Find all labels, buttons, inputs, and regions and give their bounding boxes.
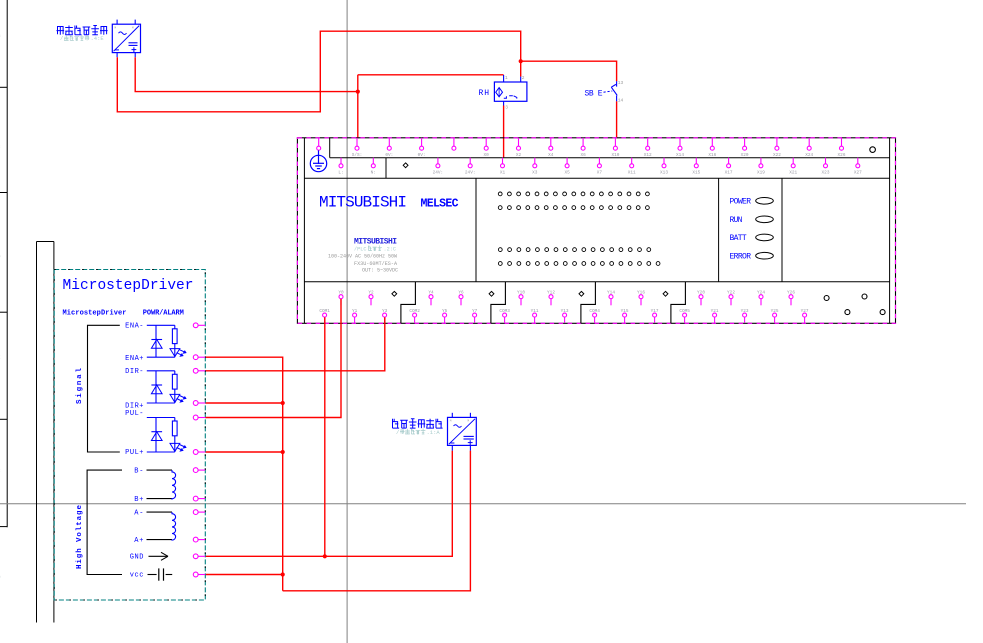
svg-text:X14: X14	[676, 153, 684, 158]
svg-text:X13: X13	[660, 171, 668, 176]
svg-text:C: C	[0, 144, 1, 150]
svg-text:X20: X20	[741, 153, 749, 158]
svg-text:13: 13	[618, 80, 624, 86]
svg-text:A+: A+	[134, 537, 143, 545]
svg-text:0V:: 0V:	[418, 153, 426, 158]
svg-text:/: /	[60, 35, 63, 42]
svg-text:L:: L:	[338, 171, 343, 176]
svg-text:X21: X21	[789, 171, 797, 176]
svg-text:X1: X1	[500, 171, 506, 176]
svg-text:X23: X23	[822, 171, 830, 176]
svg-text:X2: X2	[516, 153, 522, 158]
svg-text:N:: N:	[371, 171, 376, 176]
svg-text:F: F	[0, 469, 1, 475]
svg-text:PUL-: PUL-	[125, 410, 143, 418]
svg-text:14: 14	[618, 98, 624, 104]
svg-text:X22: X22	[773, 153, 781, 158]
svg-text:X24: X24	[805, 153, 813, 158]
svg-text:2: 2	[522, 75, 525, 81]
svg-text:High Voltage: High Voltage	[76, 505, 84, 569]
svg-text:DIR-: DIR-	[125, 368, 143, 376]
svg-text:X11: X11	[628, 171, 636, 176]
svg-text:X7: X7	[597, 171, 603, 176]
svg-text:OUT: 5~30VDC: OUT: 5~30VDC	[362, 268, 398, 274]
svg-text:B+: B+	[134, 496, 143, 504]
svg-text:X15: X15	[692, 171, 700, 176]
svg-text:BATT: BATT	[730, 234, 747, 243]
svg-text:E: E	[0, 355, 1, 361]
svg-text:24V:: 24V:	[433, 171, 444, 176]
svg-text:100-240V AC 50/60Hz 50W: 100-240V AC 50/60Hz 50W	[328, 253, 398, 259]
svg-text:FX3U-60MT/ES-A: FX3U-60MT/ES-A	[354, 261, 398, 267]
svg-text:MITSUBISHI: MITSUBISHI	[354, 237, 397, 246]
svg-text:1: 1	[505, 75, 508, 81]
svg-text:X12: X12	[644, 153, 652, 158]
svg-text:X5: X5	[564, 171, 570, 176]
svg-text:X17: X17	[725, 171, 733, 176]
svg-text:.2:C: .2:C	[384, 247, 396, 253]
svg-text:X3: X3	[532, 171, 538, 176]
svg-text:3: 3	[505, 104, 508, 110]
svg-text:X6: X6	[580, 153, 586, 158]
svg-text:vcc: vcc	[130, 572, 144, 580]
svg-text:MELSEC: MELSEC	[421, 198, 459, 211]
svg-text:/PLC: /PLC	[354, 247, 366, 253]
svg-text:POWER: POWER	[730, 197, 752, 206]
svg-text:/: /	[396, 429, 399, 436]
svg-text:X27: X27	[854, 171, 862, 176]
svg-text:S/S:: S/S:	[352, 153, 363, 158]
svg-text:X0: X0	[484, 153, 490, 158]
svg-text:ERROR: ERROR	[730, 252, 752, 261]
svg-text:0V:: 0V:	[385, 153, 393, 158]
svg-text:B: B	[0, 33, 1, 39]
svg-text:X26: X26	[838, 153, 846, 158]
svg-text:Signal: Signal	[76, 368, 84, 404]
svg-text:MicrostepDriver: MicrostepDriver	[63, 278, 194, 294]
svg-text:GND: GND	[130, 554, 144, 562]
svg-text:D: D	[0, 254, 1, 260]
svg-text:MicrostepDriver: MicrostepDriver	[63, 309, 127, 317]
svg-text:X19: X19	[757, 171, 765, 176]
svg-text:ENA+: ENA+	[125, 355, 143, 363]
svg-text:24V:: 24V:	[465, 171, 476, 176]
svg-text:A-: A-	[134, 509, 143, 517]
svg-text:X16: X16	[708, 153, 716, 158]
svg-text:X4: X4	[548, 153, 554, 158]
svg-text:.1:A: .1:A	[427, 429, 441, 436]
svg-text:B-: B-	[134, 467, 143, 475]
svg-text:X10: X10	[611, 153, 619, 158]
svg-text:RH: RH	[479, 89, 490, 98]
svg-text:MITSUBISHI: MITSUBISHI	[319, 194, 407, 212]
svg-text:.4:E: .4:E	[91, 35, 105, 42]
svg-text:RUN: RUN	[730, 216, 743, 225]
svg-text:ENA-: ENA-	[125, 322, 143, 330]
svg-text:G: G	[0, 574, 1, 580]
svg-text:PUL+: PUL+	[125, 449, 143, 457]
svg-text:SB E: SB E	[585, 89, 603, 98]
svg-text:POWR/ALARM: POWR/ALARM	[143, 309, 184, 317]
